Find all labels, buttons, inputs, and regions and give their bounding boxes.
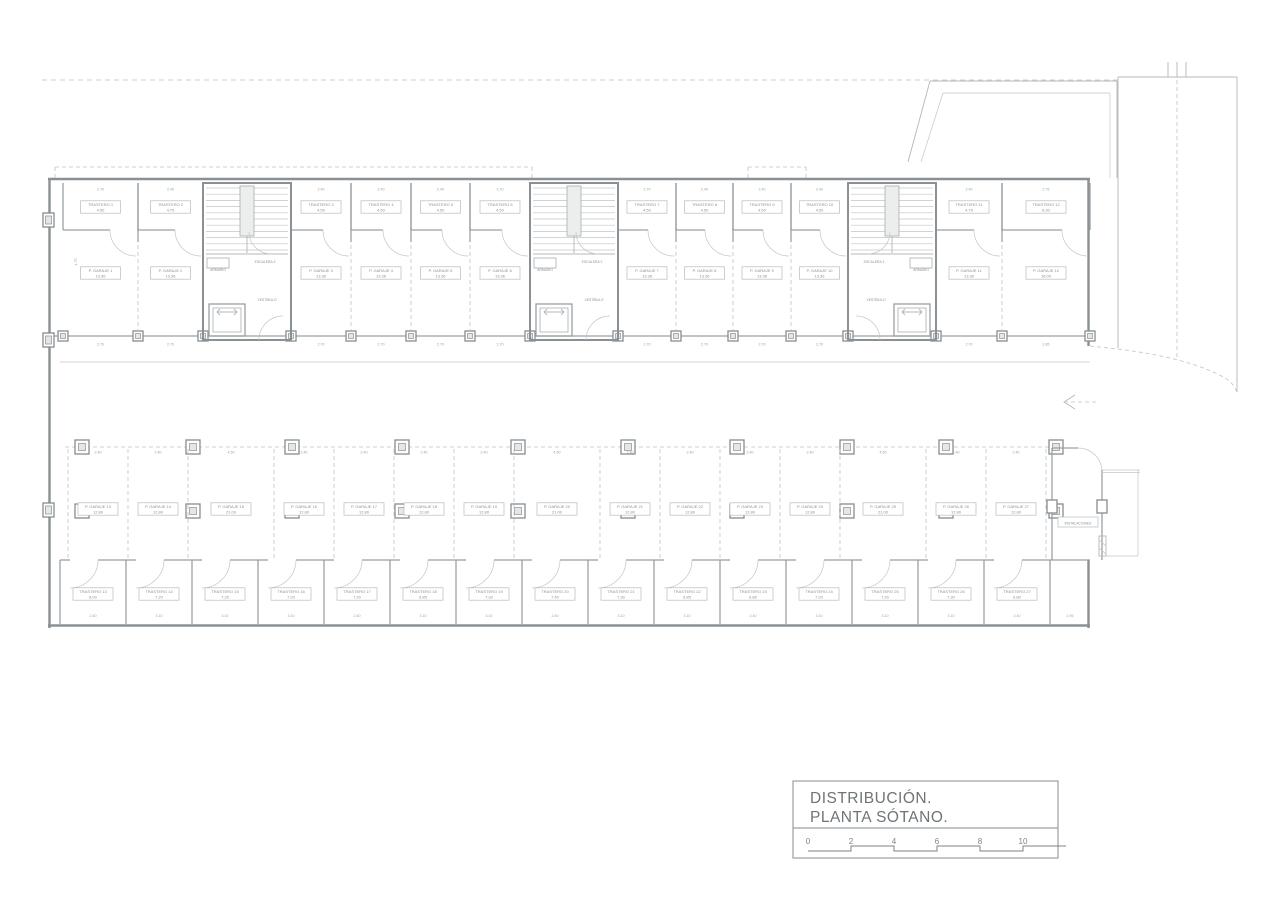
trastero-label-area: 7.30 <box>947 594 956 599</box>
door-swing-arc <box>466 560 494 588</box>
garaje-label-area: 13.36 <box>495 273 506 278</box>
plan-linework: TRASTERO 14.502.70P. GARAJE 113.362.70TR… <box>42 62 1237 628</box>
drawing-title-line-1: DISTRIBUCIÓN. <box>810 790 932 807</box>
trastero-label-area: 4.50 <box>317 207 326 212</box>
dimension-text: 2.40 <box>687 451 694 455</box>
elevator-shaft <box>536 304 572 336</box>
dimension-text: 2.70 <box>966 343 973 347</box>
door-swing-arc <box>532 560 560 588</box>
dimension-text: 3.10 <box>222 614 229 618</box>
garaje-label-name: P. GARAJE 10 <box>807 268 834 273</box>
door-swing-arc <box>796 560 824 588</box>
trastero-label-name: TRASTERO 19 <box>475 589 503 594</box>
dimension-text: 2.70 <box>318 343 325 347</box>
structural-column-core <box>844 444 851 451</box>
trastero-label-name: TRASTERO 26 <box>937 589 965 594</box>
drawing-title-line-2: PLANTA SÓTANO. <box>810 809 948 826</box>
trastero-label-area: 7.20 <box>287 594 296 599</box>
structural-column-core <box>79 444 86 451</box>
trastero-label-area: 6.30 <box>1042 207 1051 212</box>
driveway-curve-dashed <box>1090 346 1237 394</box>
dimension-text: 2.70 <box>97 188 104 192</box>
door-swing-arc <box>862 560 890 588</box>
garaje-label-area: 12.80 <box>685 509 696 514</box>
garaje-label-name: P. GARAJE 27 <box>1003 504 1030 509</box>
garaje-label-area: 12.80 <box>419 509 430 514</box>
floor-plan-drawing: TRASTERO 14.502.70P. GARAJE 113.362.70TR… <box>0 0 1280 904</box>
scale-tick-number: 0 <box>806 837 811 846</box>
dimension-text: 2.40 <box>318 188 325 192</box>
dimension-text: 2.40 <box>816 188 823 192</box>
garaje-label-name: P. GARAJE 12 <box>1033 268 1060 273</box>
trastero-label-name: TRASTERO 4 <box>368 202 394 207</box>
structural-column-core <box>399 444 406 451</box>
dimension-text: 4.50 <box>880 451 887 455</box>
dimension-text: 3.10 <box>156 614 163 618</box>
trastero-label-area: 4.75 <box>167 207 176 212</box>
garaje-label-name: P. GARAJE 21 <box>617 504 644 509</box>
door-swing-arc <box>598 560 626 588</box>
dimension-text: 2.40 <box>437 188 444 192</box>
dimension-text: 2.40 <box>354 614 361 618</box>
graphic-scale-bar <box>808 846 1066 851</box>
garage-column-core <box>349 334 354 339</box>
trastero-label-area: 6.85 <box>749 594 758 599</box>
door-swing-arc <box>268 560 296 588</box>
dimension-text: 2.85 <box>1043 343 1050 347</box>
closet-outline <box>207 258 229 268</box>
trastero-label-name: TRASTERO 22 <box>673 589 701 594</box>
trastero-label-name: TRASTERO 10 <box>806 202 834 207</box>
lobby-label: VESTÍBULO <box>584 298 603 302</box>
door-swing-arc <box>648 230 674 256</box>
door-swing-arc <box>664 560 692 588</box>
trastero-label-name: TRASTERO 7 <box>634 202 660 207</box>
trastero-label-name: TRASTERO 13 <box>79 589 107 594</box>
scale-tick-number: 2 <box>849 837 854 846</box>
garaje-label-name: P. GARAJE 13 <box>85 504 112 509</box>
garaje-label-area: 12.80 <box>359 509 370 514</box>
closet-label: ARMARIO <box>913 268 929 272</box>
dimension-text: 2.75 <box>1043 188 1050 192</box>
garage-column-core <box>409 334 414 339</box>
trastero-label-name: TRASTERO 20 <box>541 589 569 594</box>
stair-label: ESCALERA 1 <box>864 260 885 264</box>
lobby-label: VESTÍBULO <box>866 298 885 302</box>
garaje-label-name: P. GARAJE 17 <box>351 504 378 509</box>
garage-column-core <box>136 334 141 339</box>
dimension-text: 4.75 <box>74 259 78 266</box>
garaje-label-area: 13.36 <box>376 273 387 278</box>
garaje-label-area: 12.80 <box>1011 509 1022 514</box>
trastero-label-area: 7.30 <box>485 594 494 599</box>
dimension-text: 2.40 <box>966 188 973 192</box>
wall-column-core <box>46 506 52 514</box>
garaje-label-name: P. GARAJE 24 <box>797 504 824 509</box>
dimension-text: 2.40 <box>552 614 559 618</box>
structural-column-core <box>515 444 522 451</box>
garaje-label-area: 13.36 <box>642 273 653 278</box>
garaje-label-area: 13.36 <box>964 273 975 278</box>
door-swing-arc <box>1078 448 1102 472</box>
lobby-label: VESTÍBULO <box>257 298 276 302</box>
garaje-label-name: P. GARAJE 15 <box>218 504 245 509</box>
dimension-text: 3.10 <box>486 614 493 618</box>
garaje-label-name: P. GARAJE 20 <box>544 504 571 509</box>
garage-column-core <box>674 334 679 339</box>
trastero-label-name: TRASTERO 9 <box>749 202 775 207</box>
dimension-text: 2.40 <box>1013 451 1020 455</box>
trastero-label-name: TRASTERO 8 <box>692 202 718 207</box>
floor-plan-sheet: TRASTERO 14.502.70P. GARAJE 113.362.70TR… <box>0 0 1280 904</box>
stair-flight-well <box>240 186 254 236</box>
trastero-label-name: TRASTERO 25 <box>871 589 899 594</box>
door-swing-arc <box>994 560 1022 588</box>
title-block: DISTRIBUCIÓN. PLANTA SÓTANO. 0246810 <box>793 781 1066 858</box>
door-swing-arc <box>70 560 98 588</box>
garaje-label-area: 16.00 <box>1041 273 1052 278</box>
dimension-text: 2.40 <box>953 451 960 455</box>
garaje-label-area: 12.80 <box>745 509 756 514</box>
garaje-label-area: 12.80 <box>625 509 636 514</box>
structural-column-core <box>190 444 197 451</box>
garage-column-core <box>1088 334 1093 339</box>
wall-column-core <box>46 336 52 344</box>
trastero-label-name: TRASTERO 27 <box>1003 589 1031 594</box>
door-swing-arc <box>136 560 164 588</box>
garaje-label-area: 13.36 <box>316 273 327 278</box>
door-swing-arc <box>1062 230 1088 256</box>
trastero-label-name: TRASTERO 12 <box>1032 202 1060 207</box>
closet-label: ARMARIO <box>537 268 553 272</box>
garaje-label-area: 21.00 <box>552 509 563 514</box>
garaje-label-name: P. GARAJE 2 <box>159 268 183 273</box>
door-swing-arc <box>175 230 201 256</box>
stair-label: ESCALERA 3 <box>255 260 276 264</box>
door-swing-arc <box>202 560 230 588</box>
trastero-label-name: TRASTERO 3 <box>308 202 334 207</box>
stair-flight-well <box>567 186 581 236</box>
dimension-text: 2.70 <box>816 343 823 347</box>
dimension-text: 3.10 <box>816 614 823 618</box>
garaje-label-area: 21.00 <box>226 509 237 514</box>
trastero-label-area: 4.50 <box>758 207 767 212</box>
trastero-label-area: 7.30 <box>617 594 626 599</box>
garaje-label-area: 13.36 <box>435 273 446 278</box>
garage-column-core <box>468 334 473 339</box>
dimension-text: 3.10 <box>420 614 427 618</box>
door-swing-arc <box>383 230 409 256</box>
trastero-label-area: 6.85 <box>419 594 428 599</box>
dimension-text: 2.40 <box>481 451 488 455</box>
door-swing-arc <box>110 230 136 256</box>
door-swing-arc <box>323 230 349 256</box>
dimension-text: 1.95 <box>1067 614 1074 618</box>
scale-tick-number: 10 <box>1019 837 1028 846</box>
dimension-text: 2.40 <box>378 188 385 192</box>
dimension-text: 2.40 <box>95 451 102 455</box>
stair-label: ESCALERA 2 <box>582 260 603 264</box>
dimension-text: 2.40 <box>747 451 754 455</box>
structural-column-core <box>943 444 950 451</box>
dimension-text: 3.10 <box>684 614 691 618</box>
garage-column-core <box>61 334 66 339</box>
garaje-label-name: P. GARAJE 7 <box>635 268 659 273</box>
dimension-text: 2.40 <box>701 188 708 192</box>
garaje-label-name: P. GARAJE 18 <box>411 504 438 509</box>
dimension-text: 3.10 <box>288 614 295 618</box>
structural-column-core <box>515 508 522 515</box>
structural-column-core <box>844 508 851 515</box>
trastero-label-area: 4.50 <box>643 207 652 212</box>
structural-column-core <box>1053 444 1060 451</box>
garaje-label-name: P. GARAJE 22 <box>677 504 704 509</box>
dimension-text: 4.50 <box>554 451 561 455</box>
garaje-label-name: P. GARAJE 16 <box>291 504 318 509</box>
trastero-label-area: 4.50 <box>377 207 386 212</box>
dimension-text: 2.70 <box>644 188 651 192</box>
trastero-label-name: TRASTERO 11 <box>955 202 983 207</box>
garaje-label-name: P. GARAJE 3 <box>309 268 333 273</box>
door-swing-arc <box>974 230 1000 256</box>
door-swing-arc <box>820 230 846 256</box>
trastero-label-name: TRASTERO 16 <box>277 589 305 594</box>
dimension-text: 2.70 <box>378 343 385 347</box>
garaje-label-area: 13.36 <box>95 273 106 278</box>
garaje-label-name: P. GARAJE 25 <box>870 504 897 509</box>
closet-outline <box>910 258 932 268</box>
trastero-label-area: 7.25 <box>221 594 230 599</box>
door-swing-arc <box>334 560 362 588</box>
garaje-label-area: 13.36 <box>165 273 176 278</box>
trastero-label-name: TRASTERO 17 <box>343 589 371 594</box>
trastero-label-area: 4.50 <box>97 207 106 212</box>
garaje-label-name: P. GARAJE 26 <box>943 504 970 509</box>
door-swing-arc <box>442 230 468 256</box>
trastero-label-area: 8.00 <box>89 594 98 599</box>
trastero-label-name: TRASTERO 23 <box>739 589 767 594</box>
dimension-text: 4.50 <box>228 451 235 455</box>
dimension-text: 2.40 <box>167 188 174 192</box>
garaje-label-name: P. GARAJE 14 <box>145 504 172 509</box>
elevator-shaft <box>894 304 930 336</box>
dimension-text: 2.40 <box>1014 614 1021 618</box>
trastero-label-area: 7.20 <box>815 594 824 599</box>
structural-column-core <box>734 444 741 451</box>
trastero-label-name: TRASTERO 6 <box>487 202 513 207</box>
wall-column-core <box>46 216 52 224</box>
dimension-text: 2.40 <box>807 451 814 455</box>
dimension-text: 3.10 <box>948 614 955 618</box>
dimension-text: 2.40 <box>90 614 97 618</box>
trastero-label-area: 4.50 <box>701 207 710 212</box>
dimension-text: 2.40 <box>750 614 757 618</box>
door-swing-arc <box>763 230 789 256</box>
trastero-label-area: 7.20 <box>155 594 164 599</box>
garaje-label-name: P. GARAJE 23 <box>737 504 764 509</box>
trastero-label-area: 4.50 <box>496 207 505 212</box>
door-swing-arc <box>928 560 956 588</box>
garaje-label-area: 12.80 <box>951 509 962 514</box>
garaje-label-name: P. GARAJE 9 <box>750 268 774 273</box>
structural-column-core <box>625 444 632 451</box>
scale-tick-number: 6 <box>935 837 940 846</box>
trastero-label-name: TRASTERO 21 <box>607 589 635 594</box>
door-swing-arc <box>400 560 428 588</box>
trastero-label-area: 7.20 <box>881 594 890 599</box>
garage-column-core <box>1000 334 1005 339</box>
trastero-label-area: 4.75 <box>965 207 974 212</box>
trastero-label-area: 4.50 <box>437 207 446 212</box>
garaje-label-area: 12.80 <box>299 509 310 514</box>
garaje-label-name: P. GARAJE 1 <box>89 268 113 273</box>
garaje-label-area: 21.00 <box>878 509 889 514</box>
dimension-text: 2.70 <box>497 188 504 192</box>
dimension-text: 2.40 <box>627 451 634 455</box>
wall-column <box>1097 500 1107 513</box>
garaje-label-name: P. GARAJE 6 <box>488 268 512 273</box>
garaje-label-area: 13.36 <box>814 273 825 278</box>
dimension-text: 2.70 <box>167 343 174 347</box>
garaje-label-area: 13.36 <box>699 273 710 278</box>
trastero-label-name: TRASTERO 14 <box>145 589 173 594</box>
door-swing-arc <box>730 560 758 588</box>
garaje-label-name: P. GARAJE 4 <box>369 268 393 273</box>
dimension-text: 3.10 <box>618 614 625 618</box>
garaje-label-name: P. GARAJE 8 <box>693 268 717 273</box>
garaje-label-name: P. GARAJE 19 <box>471 504 498 509</box>
garaje-label-area: 12.80 <box>153 509 164 514</box>
trastero-label-area: 6.85 <box>683 594 692 599</box>
dimension-text: 2.70 <box>437 343 444 347</box>
utility-room-label: INSTALACIONES <box>1065 522 1093 526</box>
door-swing-arc <box>502 230 528 256</box>
court-outer-slant <box>908 81 930 162</box>
garaje-label-name: P. GARAJE 11 <box>956 268 982 273</box>
garaje-label-area: 13.36 <box>757 273 768 278</box>
scale-tick-number: 4 <box>892 837 897 846</box>
garaje-label-area: 12.80 <box>93 509 104 514</box>
trastero-label-area: 6.80 <box>1013 594 1022 599</box>
closet-outline <box>534 258 556 268</box>
garage-column-core <box>731 334 736 339</box>
dimension-text: 2.40 <box>421 451 428 455</box>
graphic-scale-ticks: 0246810 <box>806 837 1028 846</box>
dimension-text: 2.70 <box>497 343 504 347</box>
trastero-label-area: 4.50 <box>816 207 825 212</box>
dimension-text: 2.70 <box>97 343 104 347</box>
dimension-text: 2.40 <box>759 188 766 192</box>
dimension-text: 2.70 <box>759 343 766 347</box>
trastero-label-name: TRASTERO 15 <box>211 589 239 594</box>
stair-flight-well <box>885 186 899 236</box>
trastero-label-name: TRASTERO 1 <box>88 202 114 207</box>
trastero-label-name: TRASTERO 24 <box>805 589 833 594</box>
elevator-shaft <box>209 304 245 336</box>
structural-column-core <box>289 444 296 451</box>
garaje-label-name: P. GARAJE 5 <box>429 268 453 273</box>
structural-column-core <box>190 508 197 515</box>
dimension-text: 2.40 <box>155 451 162 455</box>
dimension-text: 2.70 <box>644 343 651 347</box>
wall-column <box>1047 500 1057 513</box>
dimension-text: 2.70 <box>701 343 708 347</box>
trastero-label-name: TRASTERO 2 <box>158 202 184 207</box>
garaje-label-area: 12.80 <box>479 509 490 514</box>
dimension-text: 3.10 <box>882 614 889 618</box>
garage-column-core <box>789 334 794 339</box>
trastero-label-area: 7.20 <box>353 594 362 599</box>
trastero-label-name: TRASTERO 5 <box>428 202 454 207</box>
closet-label: ARMARIO <box>210 268 226 272</box>
dimension-text: 2.40 <box>301 451 308 455</box>
garaje-label-area: 12.80 <box>805 509 816 514</box>
trastero-label-name: TRASTERO 18 <box>409 589 437 594</box>
trastero-label-area: 7.40 <box>551 594 560 599</box>
scale-tick-number: 8 <box>978 837 983 846</box>
door-swing-arc <box>705 230 731 256</box>
dimension-text: 2.40 <box>361 451 368 455</box>
